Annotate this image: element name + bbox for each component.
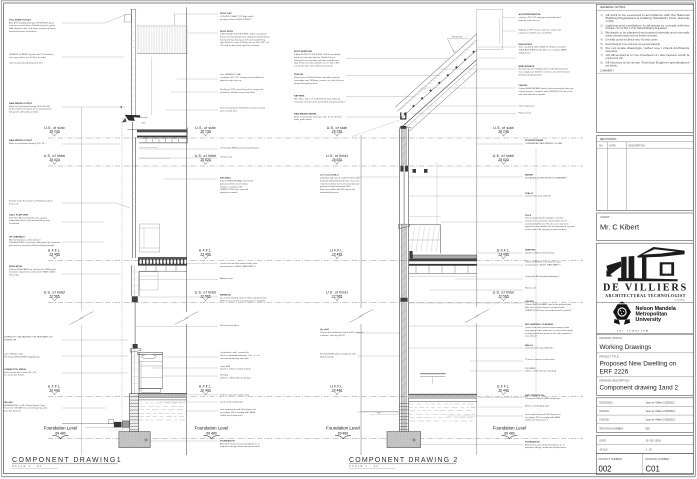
svg-text:Mr. C Kibert: Mr. C Kibert bbox=[600, 223, 639, 232]
svg-text:Contact for min dim umbra unde: Contact for min dim umbra under ovenpres… bbox=[220, 262, 258, 268]
svg-text:ARCHITECTURAL TECHNOLOGIST: ARCHITECTURAL TECHNOLOGIST bbox=[605, 293, 686, 298]
svg-text:REVISION NUMBER :: REVISION NUMBER : bbox=[600, 427, 625, 430]
svg-text:Cemented 900 brandering/hanger: Cemented 900 brandering/hangers bbox=[525, 275, 560, 278]
svg-text:COMPONENT DRAWING 2: COMPONENT DRAWING 2 bbox=[349, 457, 459, 464]
svg-text:CLIENT :: CLIENT : bbox=[600, 215, 611, 219]
svg-text:PROJECT NUMBER :: PROJECT NUMBER : bbox=[599, 458, 624, 461]
svg-text:Foundation Level: Foundation Level bbox=[326, 426, 360, 431]
svg-text:002: 002 bbox=[599, 464, 612, 473]
svg-text:69 480: 69 480 bbox=[504, 432, 514, 436]
svg-text:Woven soft: Woven soft bbox=[525, 286, 536, 289]
svg-text:Juan de Villiers 21/050212: Juan de Villiers 21/050212 bbox=[646, 401, 676, 404]
svg-text:75mm SCREEDS is distribution,: 75mm SCREEDS is distribution, plusaccele… bbox=[525, 261, 562, 267]
svg-text:Velcro gammace: Velcro gammace bbox=[519, 105, 536, 108]
svg-text:Foundation Level: Foundation Level bbox=[44, 426, 78, 431]
svg-text:Working Drawings: Working Drawings bbox=[600, 344, 652, 351]
svg-text:ISSUED :: ISSUED : bbox=[600, 419, 611, 422]
svg-text:SCALE 1 : 20: SCALE 1 : 20 bbox=[12, 464, 42, 468]
svg-text:75 micro concrete surface bed: 75 micro concrete surface bed bbox=[525, 358, 555, 361]
svg-text:for tomorrow: for tomorrow bbox=[618, 328, 650, 332]
svg-text:DRAWING NUMBER :: DRAWING NUMBER : bbox=[646, 458, 671, 461]
svg-text:DESIGNED :: DESIGNED : bbox=[600, 401, 615, 404]
svg-text:10 / 05 / 2016: 10 / 05 / 2016 bbox=[646, 439, 662, 442]
svg-text:Foundation Level: Foundation Level bbox=[195, 426, 229, 431]
svg-text:DRAWING STATUS :: DRAWING STATUS : bbox=[600, 337, 624, 340]
svg-text:COMPONENT DRAWING1: COMPONENT DRAWING1 bbox=[12, 457, 122, 464]
svg-text:DRAWING DESCRIPTION :: DRAWING DESCRIPTION : bbox=[600, 379, 631, 382]
svg-text:Adamax joint: Adamax joint bbox=[220, 277, 233, 280]
svg-text:H.G.: H.G. bbox=[377, 413, 381, 415]
svg-text:REVISIONS: REVISIONS bbox=[600, 137, 616, 141]
svg-text:69 480: 69 480 bbox=[338, 432, 348, 436]
svg-text:GENERAL NOTES: GENERAL NOTES bbox=[600, 5, 625, 9]
svg-text:69 480: 69 480 bbox=[55, 432, 65, 436]
svg-text:Riser: Riser bbox=[142, 121, 147, 124]
svg-text:PROJECT TITLE :: PROJECT TITLE : bbox=[600, 356, 621, 359]
svg-text:6x6 mm clear glass: 6x6 mm clear glass bbox=[220, 324, 240, 327]
svg-text:C01: C01 bbox=[646, 464, 660, 473]
svg-text:Component drawing 1and 2: Component drawing 1and 2 bbox=[600, 385, 679, 392]
svg-text:Drip joint: Drip joint bbox=[140, 116, 148, 119]
svg-text:Juan de Villiers 21/050212: Juan de Villiers 21/050212 bbox=[646, 419, 676, 422]
svg-text:SCALE :: SCALE : bbox=[600, 448, 610, 451]
svg-text:DRAWN :: DRAWN : bbox=[600, 410, 611, 413]
svg-text:Ventura vent: Ventura vent bbox=[220, 155, 233, 158]
svg-text:in training: in training bbox=[675, 298, 685, 301]
svg-text:PITCH 26%: PITCH 26% bbox=[452, 36, 463, 38]
svg-text:80mm sand binding layer: 80mm sand binding layer bbox=[525, 404, 550, 407]
svg-text:Sand wand analog layer: Sand wand analog layer bbox=[220, 400, 244, 403]
svg-text:69 480: 69 480 bbox=[206, 432, 216, 436]
svg-text:Juan de Villiers 21/050212: Juan de Villiers 21/050212 bbox=[646, 410, 676, 413]
svg-text:Plasti warrior: Plasti warrior bbox=[519, 111, 532, 114]
svg-text:DATE :: DATE : bbox=[600, 439, 608, 442]
svg-text:Gel wander RIM plasti-serving: Gel wander RIM plasti-serving changed bbox=[220, 146, 259, 149]
svg-text:1 : 20: 1 : 20 bbox=[646, 448, 653, 451]
svg-text:40 thick concrete surface slab: 40 thick concrete surface slab bbox=[220, 393, 250, 396]
svg-text:Foundation Level: Foundation Level bbox=[493, 426, 527, 431]
svg-text:LIV Creamed-BLO140x45x1xg8 tas: LIV Creamed-BLO140x45x1xg8 tassels cold … bbox=[320, 175, 361, 194]
svg-text:002: 002 bbox=[646, 427, 651, 430]
svg-text:SCALE 1 : 20: SCALE 1 : 20 bbox=[349, 464, 379, 468]
svg-text:COMMENT: COMMENT bbox=[600, 69, 614, 73]
